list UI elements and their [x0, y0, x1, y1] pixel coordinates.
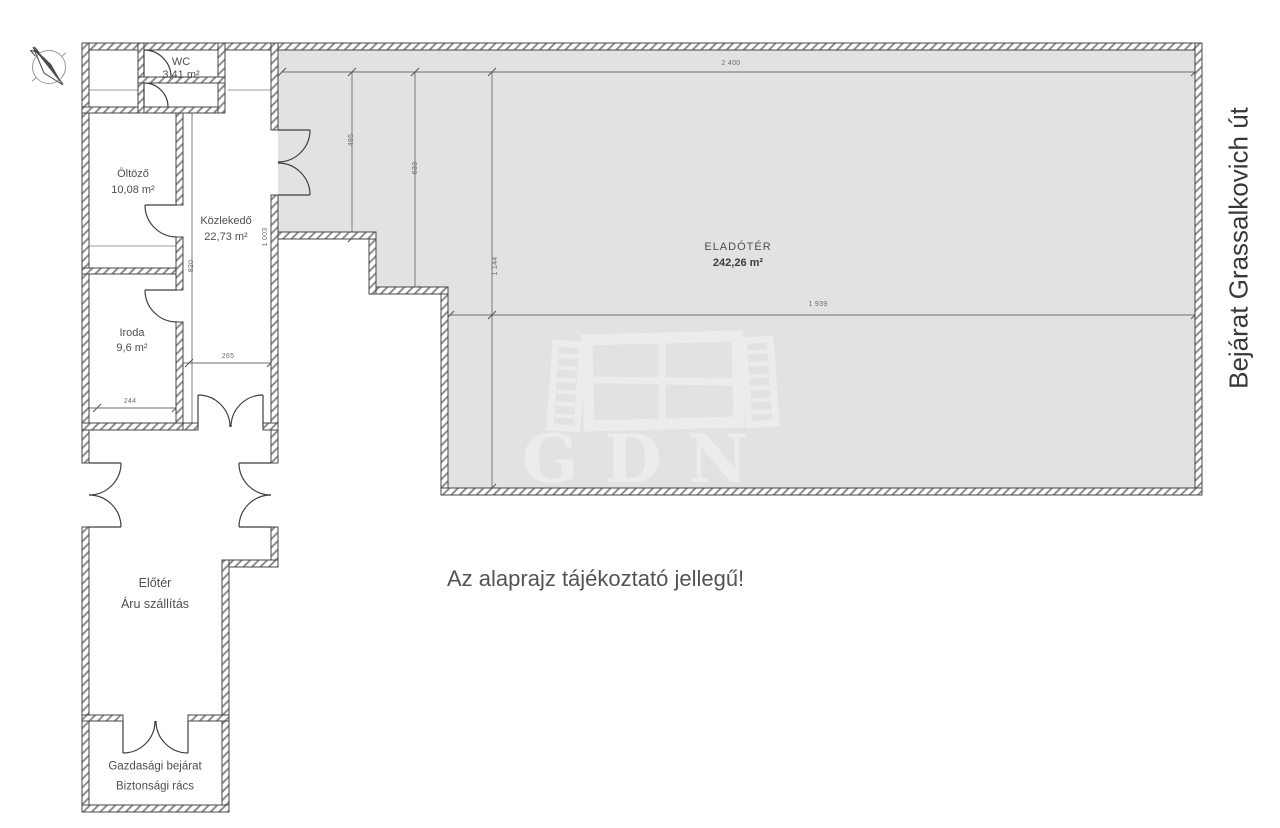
disclaimer-text: Az alaprajz tájékoztató jellegű! — [447, 566, 744, 592]
room-area-eladoter: 242,26 m² — [713, 257, 763, 269]
dimension-633: 633 — [412, 162, 420, 175]
room-label-eloter: Előtér — [139, 577, 172, 591]
compass-north-arrow-icon: N — [18, 36, 80, 98]
double-door-icon — [89, 463, 121, 527]
double-door-icon — [198, 395, 263, 427]
room-subtitle-eloter: Áru szállítás — [121, 598, 189, 612]
room-area-oltozo: 10,08 m² — [111, 184, 154, 196]
floor-plan-page: GDN — [0, 0, 1280, 828]
room-area-iroda: 9,6 m² — [116, 342, 147, 354]
double-door-icon — [239, 463, 271, 527]
street-entrance-label: Bejárat Grassalkovich út — [1224, 107, 1255, 389]
dimension-820: 820 — [188, 260, 196, 273]
dimension-1144: 1 144 — [492, 256, 500, 275]
watermark-text: GDN — [522, 420, 774, 498]
north-label: N — [28, 45, 42, 59]
dimension-1939: 1 939 — [808, 301, 827, 309]
room-label-gazdasagi: Gazdasági bejárat — [108, 761, 201, 774]
room-subtitle-gazdasagi: Biztonsági rács — [116, 781, 194, 794]
floor-plan-drawing: GDN — [0, 0, 1280, 828]
room-area-kozlekedo: 22,73 m² — [204, 231, 247, 243]
dimension-265: 265 — [222, 353, 235, 361]
dimension-495: 495 — [348, 134, 356, 147]
window-logo-icon — [550, 336, 776, 429]
room-label-oltozo: Öltöző — [117, 168, 149, 180]
dimension-2400: 2 400 — [721, 60, 740, 68]
room-label-kozlekedo: Közlekedő — [200, 215, 251, 227]
dimension-1003: 1 003 — [262, 227, 270, 246]
room-label-eladoter: ELADÓTÉR — [704, 241, 771, 253]
room-label-wc: WC — [172, 56, 190, 68]
room-label-iroda: Iroda — [119, 327, 144, 339]
door-swing-icon — [145, 205, 177, 237]
dimension-244: 244 — [124, 398, 137, 406]
door-swing-icon — [145, 290, 177, 322]
door-swing-icon — [144, 83, 168, 107]
double-door-icon — [123, 721, 188, 753]
room-area-wc: 3,41 m² — [162, 69, 199, 81]
